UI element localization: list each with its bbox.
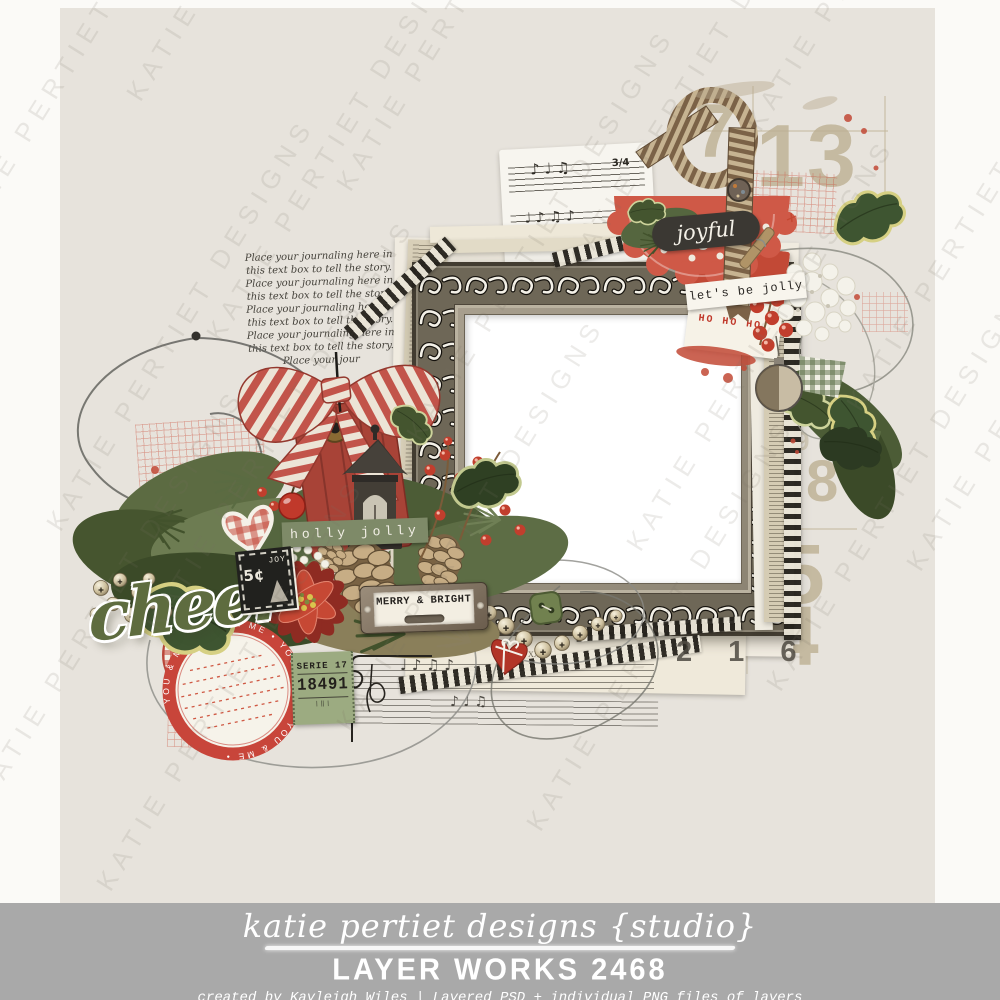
ticket-serie-number: 17 <box>335 660 348 670</box>
music-staff <box>346 698 658 726</box>
stamp-grid-line <box>884 96 886 216</box>
button-icon <box>728 179 750 201</box>
chalkboard-stamp: 5¢ JOY <box>235 546 297 614</box>
music-notes: ♪ ♩ ♫ <box>450 694 487 710</box>
joyful-text: joyful <box>676 216 737 245</box>
red-crosshatch-stamp <box>167 677 241 749</box>
ticket-number: 18491 <box>296 675 350 696</box>
red-crosshatch-stamp <box>862 292 908 332</box>
ho-ho-ho-text: HO HO HO' <box>687 312 782 334</box>
credit-line: created by Kayleigh Wiles | Layered PSD … <box>0 990 1000 1000</box>
stamped-number-8: 8 <box>806 453 840 511</box>
time-signature: 3/4 <box>612 157 630 169</box>
holly-jolly-label: holly jolly <box>282 517 429 547</box>
chalk-price-text: 5¢ <box>243 565 266 585</box>
product-preview-page: 7 13 9 2 8 5 4 2 1 6 ♪ ♩ ♫ 3/4 ♩ ♪ ♫ ♪ <box>0 0 1000 1000</box>
brass-grommet <box>319 412 351 444</box>
gingham-fabric-scrap <box>798 356 846 398</box>
brush-underline <box>264 946 735 950</box>
scrapbook-canvas: 7 13 9 2 8 5 4 2 1 6 ♪ ♩ ♫ 3/4 ♩ ♪ ♫ ♪ <box>60 8 935 904</box>
striped-washi-tape <box>784 268 801 640</box>
artwork-layer: 7 13 9 2 8 5 4 2 1 6 ♪ ♩ ♫ 3/4 ♩ ♪ ♫ ♪ <box>60 8 935 904</box>
bookplate-slot <box>404 614 444 623</box>
red-crosshatch-stamp <box>746 170 837 235</box>
product-title: LAYER WORKS 2468 <box>0 953 1000 988</box>
vintage-ticket: SERIE 17 18491 |‖| <box>291 651 355 725</box>
chalk-joy-text: JOY <box>268 555 286 566</box>
stamped-number-216: 2 1 6 <box>676 636 811 669</box>
photo-well <box>464 314 742 584</box>
red-apple-berry <box>279 487 305 519</box>
music-notes: ♪ ♩ ♫ <box>530 158 571 178</box>
pin-head <box>192 332 201 341</box>
stamped-number-7: 7 <box>694 94 738 170</box>
product-footer: katie pertiet designs {studio} LAYER WOR… <box>0 903 1000 1000</box>
designer-script-line: katie pertiet designs {studio} <box>0 907 1000 945</box>
ticket-serie-text: SERIE <box>296 661 328 672</box>
tree-icon <box>268 579 288 603</box>
merry-bright-bookplate: MERRY & BRIGHT <box>359 582 489 634</box>
red-crosshatch-stamp <box>135 416 273 573</box>
ticket-tiny-marks: |‖| <box>294 699 352 708</box>
